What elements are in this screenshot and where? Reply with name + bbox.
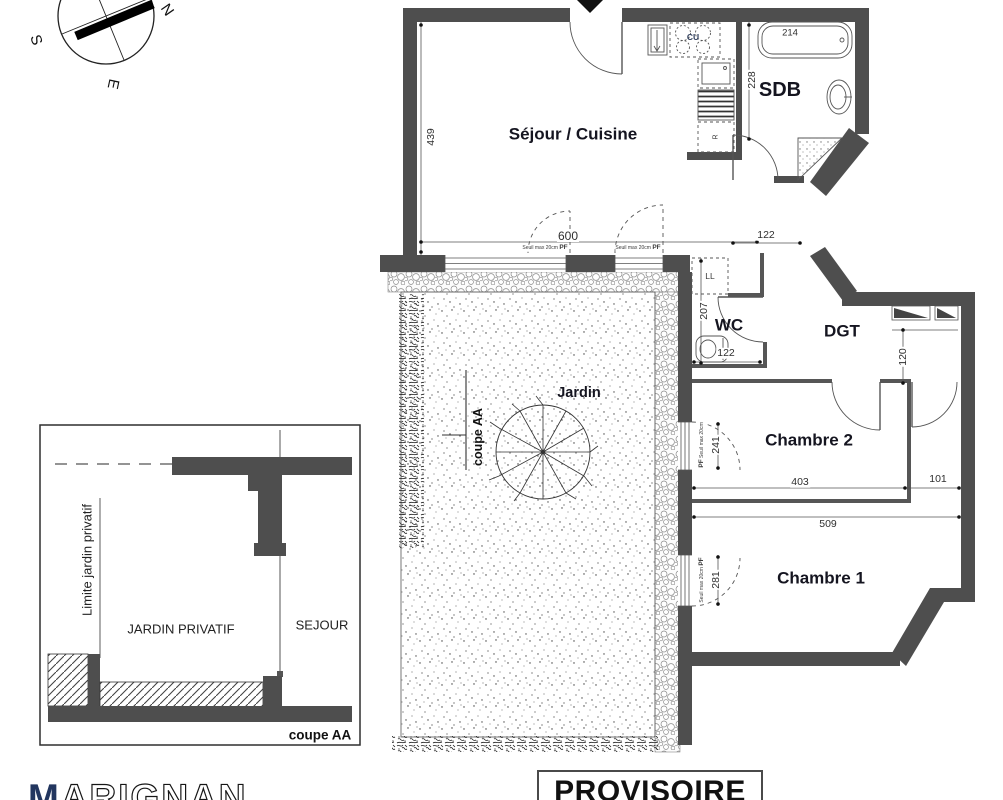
section-title: coupe AA [289, 728, 352, 742]
fridge-label: R [713, 134, 720, 139]
entrance-marker-icon [577, 0, 603, 13]
dim-bathtub: 214 [781, 28, 799, 38]
dim-entry: 122 [756, 230, 776, 241]
section-line-label: coupe AA [472, 408, 485, 466]
dim-ch1-width: 509 [818, 519, 838, 530]
compass-icon [58, 0, 154, 64]
hedge-bottom [392, 736, 658, 752]
dim-ch2-width: 403 [790, 477, 810, 488]
brand-logo-initial: M [28, 779, 61, 800]
pf-note-1: Seuil max 20cm PF [522, 245, 567, 252]
room-label-chambre1: Chambre 1 [777, 570, 865, 587]
garden-area [388, 272, 680, 752]
room-label-wc: WC [715, 317, 743, 334]
section-garden-label: JARDIN PRIVATIF [127, 623, 234, 636]
dim-dgt-window: 120 [898, 347, 909, 367]
hedge-left [399, 294, 424, 548]
pf-note-ch2: PF Seuil max 20cm [699, 422, 706, 467]
pf-note-ch1: Seuil max 20cm PF [699, 557, 706, 602]
dim-ch1-window: 281 [711, 570, 722, 590]
floor-plan-page: N S E Séjour / Cuisine SDB WC DGT Chambr… [0, 0, 1003, 800]
interior-walls [692, 253, 911, 503]
dim-sejour-width: 600 [557, 230, 579, 242]
floor-plan-drawing [0, 0, 1003, 800]
brand-logo: MARIGNAN [28, 779, 248, 800]
dgt-high-windows [892, 306, 958, 330]
washer-label: LL [705, 272, 714, 281]
bathtub-icon [758, 22, 852, 58]
brand-logo-rest: ARIGNAN [61, 779, 248, 800]
room-label-dgt: DGT [824, 323, 860, 340]
room-label-jardin: Jardin [557, 386, 601, 401]
dim-passage: 101 [928, 474, 948, 485]
dim-wc-height: 207 [699, 301, 710, 321]
section-limit-label: Limite jardin privatif [81, 504, 94, 616]
room-label-chambre2: Chambre 2 [765, 432, 853, 449]
room-label-sejour-cuisine: Séjour / Cuisine [509, 126, 637, 143]
dim-wc-width: 122 [716, 348, 736, 359]
dim-sdb-height: 228 [747, 70, 758, 90]
pf-note-2: Seuil max 20cm PF [615, 245, 660, 252]
section-living-label: SEJOUR [296, 619, 349, 632]
room-label-sdb: SDB [759, 80, 801, 100]
provisional-stamp: PROVISOIRE [537, 770, 763, 800]
dim-ch2-window: 241 [711, 435, 722, 455]
hob-label: CU [687, 33, 699, 42]
dim-sejour-height: 439 [426, 127, 437, 147]
